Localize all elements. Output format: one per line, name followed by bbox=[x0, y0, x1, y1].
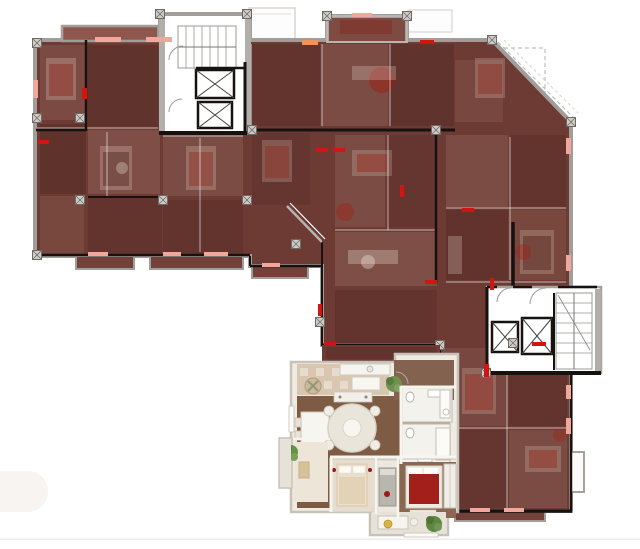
window-marker-red bbox=[82, 88, 87, 99]
nightstand-decor bbox=[368, 468, 372, 472]
column-marker bbox=[243, 10, 252, 19]
floorplan-svg bbox=[0, 0, 640, 549]
bed-icon bbox=[189, 152, 213, 186]
roof-outline-b bbox=[408, 10, 452, 32]
window-marker-pink bbox=[566, 138, 571, 154]
window-marker-pink bbox=[470, 508, 490, 512]
tile-square bbox=[324, 381, 332, 389]
bed-icon bbox=[357, 154, 387, 172]
window-marker-red bbox=[425, 280, 437, 284]
rug-icon bbox=[553, 428, 567, 442]
plant-icon bbox=[434, 523, 442, 531]
room-tint bbox=[335, 290, 437, 343]
column-marker bbox=[76, 114, 85, 123]
chair-icon bbox=[295, 418, 301, 427]
nightstand-decor bbox=[332, 468, 336, 472]
pillow-icon bbox=[339, 466, 351, 473]
bed-icon bbox=[49, 64, 73, 96]
room-tint bbox=[88, 198, 162, 254]
rug-icon bbox=[336, 203, 354, 221]
column-marker bbox=[76, 196, 85, 205]
column-marker bbox=[33, 39, 42, 48]
column-marker bbox=[323, 12, 332, 21]
sink-icon bbox=[367, 366, 373, 372]
washer-icon bbox=[443, 409, 449, 415]
core-wall-gray bbox=[595, 289, 601, 371]
balcony-bump bbox=[150, 256, 243, 269]
window-marker-pink bbox=[146, 37, 172, 42]
window-marker-pink bbox=[204, 252, 228, 256]
page-divider-line bbox=[0, 539, 640, 541]
toilet-icon bbox=[406, 392, 414, 402]
table-icon bbox=[410, 518, 418, 526]
bench-icon bbox=[299, 462, 309, 478]
window-marker-pink bbox=[504, 508, 524, 512]
window-sill bbox=[404, 533, 438, 537]
room-tint bbox=[252, 44, 320, 126]
pillow-icon bbox=[353, 466, 365, 473]
plant-icon bbox=[426, 516, 434, 524]
window-marker-pink bbox=[95, 37, 121, 42]
window-marker-pink bbox=[88, 252, 108, 256]
room-tint bbox=[163, 200, 243, 254]
pillow-icon bbox=[424, 468, 438, 474]
window-marker-pink bbox=[302, 40, 318, 45]
window-marker-red bbox=[333, 148, 345, 152]
pillow-icon bbox=[380, 469, 395, 475]
lamp-icon bbox=[339, 396, 342, 399]
window-sill bbox=[289, 406, 294, 432]
balcony-bump bbox=[76, 256, 134, 269]
kitchen-counter bbox=[340, 364, 390, 375]
column-marker bbox=[159, 196, 168, 205]
window-marker-red bbox=[316, 148, 328, 152]
window-marker-pink bbox=[352, 13, 372, 17]
decor-dot bbox=[384, 491, 390, 497]
bathtub-icon bbox=[436, 428, 450, 460]
toilet-icon bbox=[406, 428, 414, 438]
window-marker-pink bbox=[566, 255, 571, 271]
plant-icon bbox=[290, 453, 298, 461]
round-table-icon bbox=[343, 419, 361, 437]
chair-icon bbox=[370, 406, 380, 416]
plant-icon bbox=[386, 377, 394, 385]
column-marker bbox=[33, 251, 42, 260]
kitchen-island bbox=[352, 377, 380, 390]
sink-icon bbox=[428, 390, 440, 397]
column-marker bbox=[567, 118, 576, 127]
tile-square bbox=[332, 368, 340, 376]
window-marker-pink bbox=[566, 385, 571, 399]
lamp-icon bbox=[365, 396, 368, 399]
balcony-furniture-icon bbox=[340, 20, 392, 34]
window-marker-red bbox=[318, 304, 322, 316]
bed-blanket bbox=[339, 477, 365, 504]
column-marker bbox=[33, 114, 42, 123]
window-marker-red bbox=[420, 40, 434, 44]
room-tint bbox=[510, 135, 566, 207]
white-balcony bbox=[571, 452, 584, 492]
tile-square bbox=[300, 368, 308, 376]
core-wall-gray bbox=[159, 14, 165, 133]
sofa-icon bbox=[448, 236, 462, 274]
column-marker bbox=[488, 36, 497, 45]
pillow-icon bbox=[408, 468, 422, 474]
balcony-bump bbox=[252, 266, 308, 278]
column-marker bbox=[243, 196, 252, 205]
chair-icon bbox=[370, 440, 380, 450]
window-marker-pink bbox=[566, 418, 571, 434]
window-marker-red bbox=[38, 140, 49, 144]
tile-square bbox=[316, 368, 324, 376]
window-marker-pink bbox=[33, 80, 38, 98]
bed-icon bbox=[465, 374, 493, 410]
window-marker-red bbox=[462, 208, 474, 212]
balcony-floor bbox=[280, 440, 291, 486]
bed-icon bbox=[529, 450, 557, 468]
window-marker-red bbox=[532, 342, 546, 346]
room-tint bbox=[446, 135, 508, 207]
roof-outline-a bbox=[249, 8, 295, 41]
column-marker bbox=[403, 12, 412, 21]
window-marker-red bbox=[484, 364, 489, 377]
window-marker-red bbox=[490, 278, 494, 290]
table-icon bbox=[361, 255, 375, 269]
room-tint bbox=[88, 45, 158, 127]
page-pill-decor bbox=[0, 471, 48, 512]
rug-icon bbox=[515, 244, 531, 260]
column-marker bbox=[248, 126, 257, 135]
window-marker-pink bbox=[262, 263, 280, 267]
chaise-icon bbox=[378, 516, 408, 529]
window-marker-pink bbox=[163, 252, 181, 256]
chair-icon bbox=[324, 406, 334, 416]
column-marker bbox=[509, 339, 518, 348]
column-marker bbox=[316, 318, 325, 327]
tile-square bbox=[340, 381, 348, 389]
window-marker-red bbox=[400, 185, 404, 197]
column-marker bbox=[432, 126, 441, 135]
table-icon bbox=[116, 162, 128, 174]
floorplan-canvas bbox=[0, 0, 640, 549]
column-marker bbox=[292, 240, 301, 249]
room-tint bbox=[387, 135, 437, 227]
bed-blanket bbox=[409, 474, 439, 504]
bed-icon bbox=[265, 146, 289, 178]
room-tint bbox=[390, 44, 454, 126]
stool-icon bbox=[384, 520, 392, 528]
column-marker bbox=[156, 10, 165, 19]
room-tint bbox=[40, 124, 86, 194]
bed-icon bbox=[478, 64, 502, 94]
